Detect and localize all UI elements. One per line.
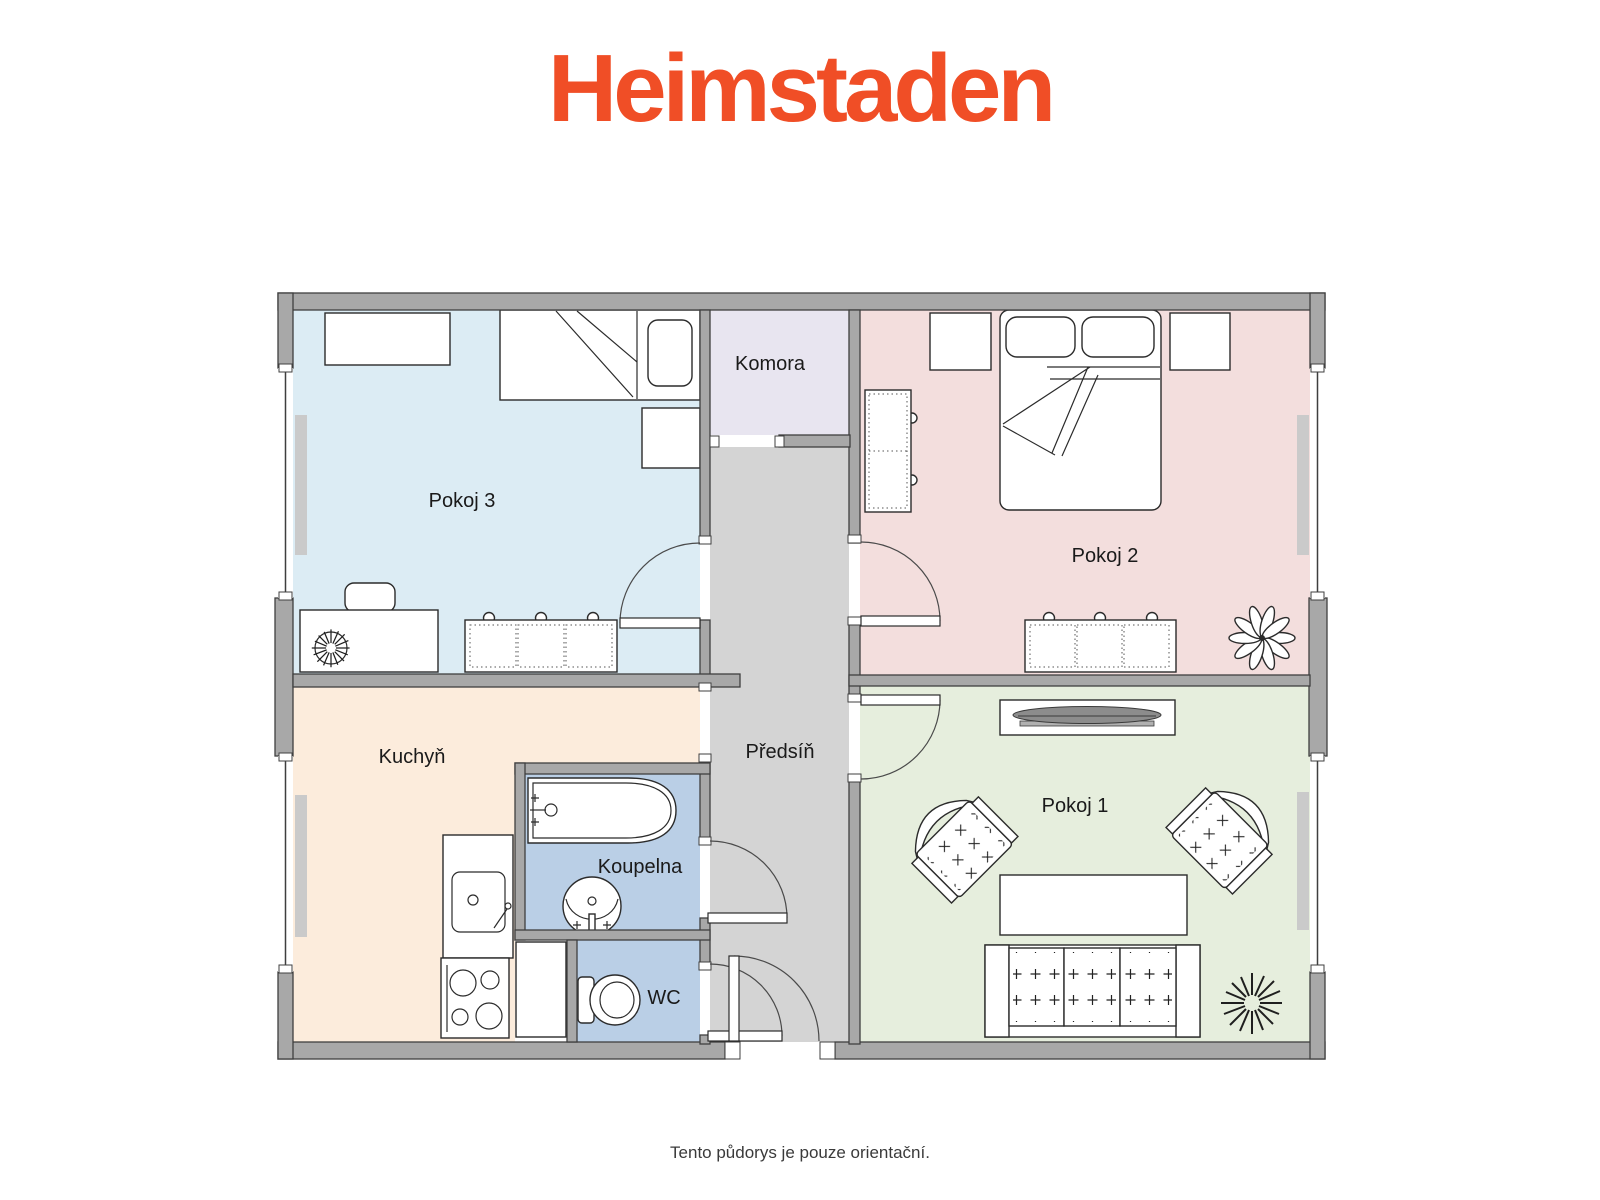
room-label-komora: Komora: [735, 353, 806, 375]
chair: [345, 583, 395, 612]
stove: [441, 958, 509, 1038]
window-sill: [1297, 792, 1309, 930]
room-label-pokoj2: Pokoj 2: [1072, 545, 1139, 567]
kitchen-counter-sink: [443, 835, 513, 958]
disclaimer-text: Tento půdorys je pouze orientační.: [0, 1143, 1600, 1163]
room-label-pokoj3: Pokoj 3: [429, 490, 496, 512]
desk: [300, 610, 438, 672]
wardrobe: [865, 390, 917, 512]
nightstand: [642, 408, 700, 468]
bathtub: [528, 778, 676, 843]
nightstand: [930, 313, 991, 370]
room-label-pokoj1: Pokoj 1: [1042, 795, 1109, 817]
window-sill: [1297, 415, 1309, 555]
room-label-koupelna: Koupelna: [598, 856, 683, 878]
window-kuchyn: [278, 753, 293, 973]
sofa: [985, 945, 1200, 1037]
dresser: [1025, 613, 1176, 673]
washing-machine-niche: [516, 942, 566, 1037]
dresser: [465, 613, 617, 673]
window-sill: [295, 795, 307, 937]
washbasin: [563, 877, 621, 935]
room-label-wc: WC: [647, 987, 680, 1009]
tv-stand: [1000, 700, 1175, 735]
room-label-predsin: Předsíň: [746, 741, 815, 763]
single-bed: [500, 310, 700, 400]
window-pokoj1: [1310, 753, 1325, 973]
window-pokoj3: [278, 364, 293, 600]
toilet: [578, 975, 640, 1025]
nightstand: [1170, 313, 1230, 370]
coffee-table: [1000, 875, 1187, 935]
room-label-kuchyn: Kuchyň: [379, 746, 446, 768]
desk: [325, 313, 450, 365]
floorplan: Pokoj 3 Komora Pokoj 2 Kuchyň Předsíň Ko…: [0, 0, 1600, 1200]
tv-icon: [1013, 707, 1161, 724]
window-sill: [295, 415, 307, 555]
window-pokoj2: [1310, 364, 1325, 600]
double-bed: [1000, 310, 1161, 510]
